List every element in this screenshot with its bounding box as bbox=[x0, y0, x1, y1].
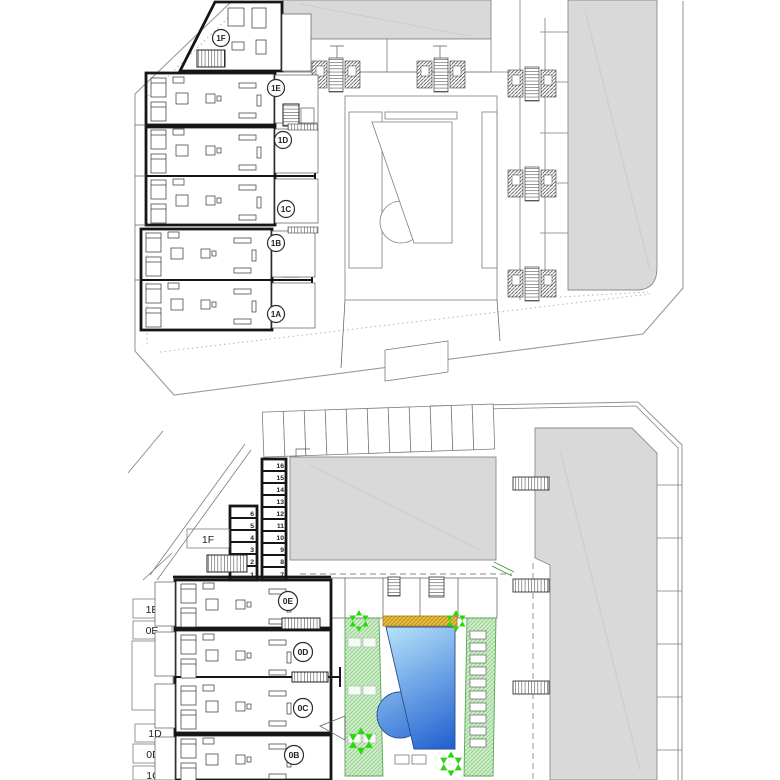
stair-court bbox=[429, 577, 444, 597]
apartment-column-upper bbox=[135, 2, 318, 330]
svg-text:0C: 0C bbox=[298, 703, 309, 713]
stair-right bbox=[513, 477, 549, 490]
unit-label-1e: 1E bbox=[268, 80, 285, 97]
unit-1d-furniture bbox=[151, 129, 261, 173]
pool-head-bar bbox=[385, 112, 457, 119]
upper-floor-plan: 1F 1E 1D 1C 1B 1A bbox=[135, 0, 683, 395]
stair-between bbox=[282, 618, 320, 629]
tree-icon bbox=[440, 751, 462, 776]
svg-text:15: 15 bbox=[276, 475, 284, 482]
building-block-right-lower bbox=[535, 428, 657, 780]
parking-stall bbox=[430, 406, 453, 452]
building-roof bbox=[568, 0, 657, 290]
setback-dotted-line-bottom bbox=[160, 294, 650, 352]
setback-dotted-line-right bbox=[560, 292, 648, 297]
svg-text:1B: 1B bbox=[271, 239, 281, 248]
entry-box-1f: 1F bbox=[187, 529, 229, 548]
unit-1c-furniture bbox=[151, 179, 261, 223]
stair-cluster bbox=[508, 67, 556, 101]
building-block-centre bbox=[290, 457, 496, 560]
stair-cluster bbox=[312, 58, 360, 92]
svg-text:5: 5 bbox=[250, 523, 254, 530]
path-line bbox=[497, 300, 500, 341]
entry-ramp bbox=[385, 341, 448, 381]
parking-stall bbox=[472, 404, 495, 450]
unit-0b-furniture bbox=[181, 738, 291, 780]
svg-text:4: 4 bbox=[250, 535, 254, 542]
pool-garden bbox=[320, 610, 496, 777]
unit-label-1d: 1D bbox=[275, 132, 292, 149]
svg-text:3: 3 bbox=[250, 547, 254, 554]
stair-right bbox=[513, 681, 549, 694]
path-line bbox=[341, 300, 345, 368]
pool-deck-bar bbox=[383, 616, 457, 626]
stair-right bbox=[513, 579, 549, 592]
courtyard-outline bbox=[341, 96, 500, 381]
stair-cluster bbox=[508, 267, 556, 301]
svg-text:1F: 1F bbox=[216, 34, 225, 43]
svg-text:1A: 1A bbox=[271, 310, 281, 319]
parking-stall bbox=[283, 411, 306, 457]
stair-court bbox=[388, 577, 400, 596]
parking-stall bbox=[388, 407, 411, 453]
deck-right bbox=[482, 112, 497, 268]
parking-stall bbox=[409, 406, 432, 452]
ground-floor-plan: 16 15 14 13 12 11 10 9 8 7 6 5 4 3 2 1 1… bbox=[128, 402, 682, 780]
unit-1b-furniture bbox=[146, 232, 256, 276]
svg-text:11: 11 bbox=[277, 523, 284, 530]
unit-0c-furniture bbox=[181, 685, 291, 729]
svg-text:12: 12 bbox=[276, 511, 284, 518]
unit-1e-furniture bbox=[151, 77, 261, 121]
svg-text:0B: 0B bbox=[289, 750, 300, 760]
unit-label-1c: 1C bbox=[278, 201, 295, 218]
svg-text:8: 8 bbox=[280, 559, 284, 566]
unit-1f-terrace bbox=[282, 14, 311, 71]
parking-stall bbox=[346, 408, 369, 454]
unit-1f-furniture bbox=[228, 8, 266, 54]
stair-1f bbox=[197, 50, 225, 67]
unit-label-0b: 0B bbox=[285, 746, 304, 765]
parking-stall bbox=[262, 411, 285, 457]
svg-text:16: 16 bbox=[276, 463, 284, 470]
unit-0e-furniture bbox=[181, 583, 291, 627]
railing bbox=[288, 227, 318, 233]
railing bbox=[288, 124, 318, 130]
plan-drawing: 1F 1E 1D 1C 1B 1A bbox=[0, 0, 780, 780]
building-block-right bbox=[520, 0, 657, 300]
svg-text:10: 10 bbox=[276, 535, 284, 542]
parking-stall bbox=[367, 408, 390, 454]
site-plan-sheet: 1F 1E 1D 1C 1B 1A bbox=[0, 0, 780, 780]
unit-label-1b: 1B bbox=[268, 235, 285, 252]
stair-between bbox=[292, 672, 328, 682]
svg-text:1F: 1F bbox=[202, 534, 214, 546]
parking-stall bbox=[325, 409, 348, 455]
svg-text:2: 2 bbox=[250, 559, 254, 566]
unit-label-0c: 0C bbox=[294, 699, 313, 718]
landing bbox=[301, 108, 314, 123]
svg-text:9: 9 bbox=[280, 547, 284, 554]
svg-text:14: 14 bbox=[276, 487, 284, 494]
stair-cluster bbox=[417, 58, 465, 92]
balcony-dividers bbox=[540, 32, 568, 233]
unit-label-0e: 0E bbox=[279, 592, 298, 611]
unit-label-0d: 0D bbox=[294, 643, 313, 662]
unit-0b-walls bbox=[175, 735, 331, 780]
svg-text:1C: 1C bbox=[281, 205, 291, 214]
svg-text:1D: 1D bbox=[278, 136, 288, 145]
corridor-rooms bbox=[331, 578, 497, 618]
unit-0d-furniture bbox=[181, 634, 291, 678]
svg-text:1E: 1E bbox=[271, 84, 281, 93]
parking-stall bbox=[451, 405, 474, 451]
svg-text:6: 6 bbox=[250, 511, 254, 518]
stair-1f-lower bbox=[207, 555, 247, 572]
stair-cluster bbox=[508, 167, 556, 201]
svg-text:13: 13 bbox=[276, 499, 284, 506]
svg-text:0D: 0D bbox=[298, 647, 309, 657]
unit-label-1f: 1F bbox=[213, 30, 230, 47]
svg-text:0E: 0E bbox=[283, 596, 294, 606]
path-wedge bbox=[320, 716, 345, 740]
stair-between-1e-1d bbox=[283, 104, 299, 126]
unit-label-1a: 1A bbox=[268, 306, 285, 323]
building-roof bbox=[283, 0, 491, 39]
unit-1a-furniture bbox=[146, 283, 256, 327]
